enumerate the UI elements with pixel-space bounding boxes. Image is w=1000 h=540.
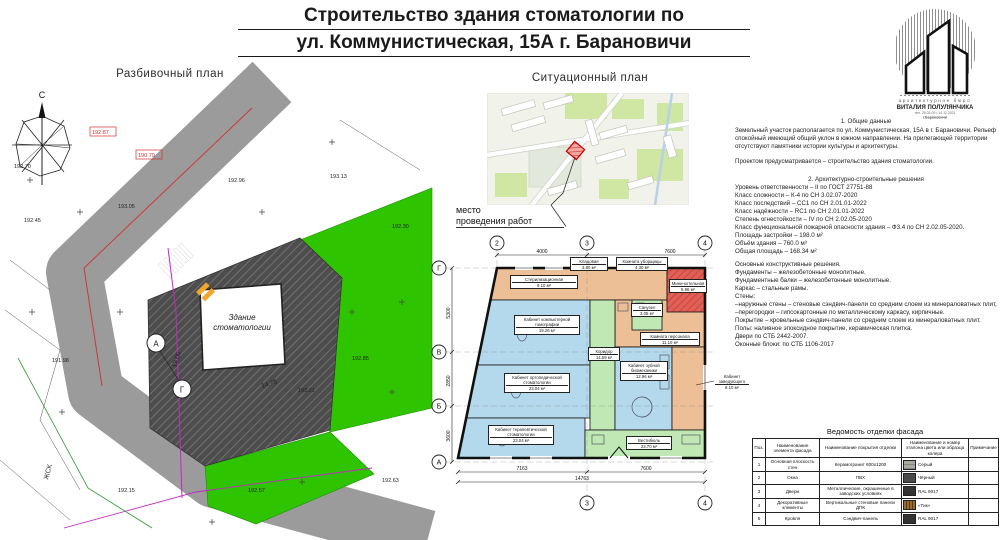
cell-coating: Металлические, окрашенные в заводских ус… — [820, 485, 902, 499]
room-area: 23.04 м² — [506, 386, 568, 391]
room-head-office — [672, 347, 705, 430]
col-header: Наименование элемента фасада — [766, 439, 820, 458]
elevation-label: 192.63 — [382, 478, 399, 484]
notes-paragraph: Земельный участок располагается по ул. К… — [735, 127, 997, 151]
elevation-label: 193.13 — [330, 174, 347, 180]
cell-element: Декоративные элементы — [766, 498, 820, 512]
color-swatch — [903, 514, 916, 524]
cell-pos: 5 — [753, 512, 766, 525]
room-biomechanics — [615, 347, 672, 430]
notes-line: Класс последствий – СС1 по СН 2.01.01-20… — [735, 200, 997, 208]
elevation-label: 192.96 — [228, 178, 245, 184]
elevation-label: 191.98 — [52, 358, 69, 364]
page-title-line1: Строительство здания стоматологии по — [238, 3, 750, 30]
cell-coating: Сэндвич-панель — [820, 512, 902, 525]
elevation-label: 192.15 — [118, 488, 135, 494]
elevation-label: 193.21 — [298, 388, 315, 394]
notes-line: –перегородки – гипсокартонные по металли… — [735, 309, 997, 317]
axis-bubble-label: 2 — [495, 241, 499, 248]
axis-bubble-label: 4 — [703, 241, 707, 248]
notes-block: 1. Общие данные Земельный участок распол… — [735, 114, 997, 349]
page-title-line2: ул. Коммунистическая, 15А г. Барановичи — [238, 30, 750, 57]
room-area: 8.10 м² — [715, 385, 749, 390]
cell-pos: 4 — [753, 498, 766, 512]
elevation-label: 193.05 — [118, 204, 135, 210]
color-swatch — [903, 486, 916, 496]
dim-label: 5300 — [446, 307, 452, 318]
cell-note — [969, 485, 999, 499]
room-area: 9.10 м² — [512, 283, 576, 288]
facade-table: Поз. Наименование элемента фасада Наимен… — [752, 438, 999, 526]
col-header: Наименование покрытия отделки — [820, 439, 902, 458]
notes-section1-title: 1. Общие данные — [735, 118, 997, 126]
elevation-label: 192.87 — [92, 130, 109, 136]
notes-line: Фундаменты – железобетонные монолитные. — [735, 269, 997, 277]
site-building-label-2: стоматологии — [213, 323, 271, 332]
col-header: Поз. — [753, 439, 766, 458]
table-header-row: Поз. Наименование элемента фасада Наимен… — [753, 439, 999, 458]
room-label: Коридор 14.59 м² — [588, 347, 620, 361]
notes-line: Класс функциональной пожарной опасности … — [735, 224, 997, 232]
cell-coating: ПВХ — [820, 472, 902, 485]
dim-label: 2850 — [446, 375, 452, 386]
layout-plan-panel: Разбивочный план Здание стоматологии — [0, 60, 440, 540]
dim-label-total: 14763 — [575, 476, 589, 482]
table-row: 5 Кровля Сэндвич-панель RAL 9017 — [753, 512, 999, 525]
axis-bubble-label: Б — [437, 404, 442, 411]
color-name: RAL 9017 — [918, 489, 938, 494]
axis-bubble-label: 3 — [585, 501, 589, 508]
cell-color: Чёрный — [902, 472, 969, 485]
elevation-label: 192.45 — [24, 218, 41, 224]
cell-color: RAL 9017 — [902, 485, 969, 499]
room-area: 3.80 м² — [572, 265, 606, 270]
north-arrow-icon — [12, 102, 72, 185]
cell-element: Основная плоскость стен — [766, 458, 820, 472]
dim-label: 3600 — [446, 430, 452, 441]
room-label: Кабинет ортопедической стоматологии 23.0… — [504, 373, 570, 393]
table-row: 3 Двери Металлические, окрашенные в заво… — [753, 485, 999, 499]
floor-plan-panel: 4000 7600 2 3 4 7163 7600 14763 3 — [430, 235, 750, 540]
cell-pos: 2 — [753, 472, 766, 485]
site-building-label-1: Здание — [228, 313, 256, 322]
elevation-label: 190.79 — [138, 153, 155, 159]
room-label: Кабинет зубной биомеханики 12.96 м² — [620, 361, 668, 381]
room-area: 4.30 м² — [618, 265, 666, 270]
room-label: Стерилизационная 9.10 м² — [510, 275, 578, 289]
table-row: 4 Декоративные элементы Вертикальные сте… — [753, 498, 999, 512]
dim-label: 7163 — [516, 466, 527, 472]
room-corridor — [590, 300, 615, 430]
axis-bubble-label: В — [437, 350, 442, 357]
notes-line: Объём здания – 760.0 м³ — [735, 240, 997, 248]
room-area: 12.96 м² — [622, 374, 666, 379]
cell-note — [969, 512, 999, 525]
cell-color: Серый — [902, 458, 969, 472]
notes-line: Покрытие – кровельные сэндвич-панели со … — [735, 317, 997, 325]
color-swatch — [903, 500, 916, 510]
layout-plan-drawing: Здание стоматологии — [0, 60, 440, 540]
notes-line: Каркас – стальные рамы. — [735, 285, 997, 293]
cell-element: Двери — [766, 485, 820, 499]
bottom-dimensions: 7163 7600 14763 3 4 — [456, 466, 712, 510]
room-label: Комната персонала 11.10 м² — [640, 332, 700, 346]
elevation-label: 192.85 — [352, 356, 369, 362]
cell-color: «Тик» — [902, 498, 969, 512]
room-name: Кабинет ортопедической стоматологии — [506, 375, 568, 386]
dim-label: 7600 — [640, 466, 651, 472]
color-name: «Тик» — [918, 503, 930, 508]
elevation-label: 192.30 — [392, 224, 409, 230]
facade-table-title: Ведомость отделки фасада — [752, 427, 998, 436]
axis-bubble-label: Г — [437, 266, 441, 273]
cell-color: RAL 9017 — [902, 512, 969, 525]
logo-type-label: архитектурное бюро — [899, 98, 971, 103]
page-title: Строительство здания стоматологии по ул.… — [238, 3, 750, 57]
axis-bubble-label: А — [153, 340, 159, 349]
col-header: Примечание — [969, 439, 999, 458]
top-dimensions: 4000 7600 2 3 4 — [490, 236, 712, 257]
room-area: 23.70 м² — [628, 444, 670, 449]
facade-finish-table: Ведомость отделки фасада Поз. Наименован… — [752, 427, 998, 526]
cell-element: Кровля — [766, 512, 820, 525]
room-area: 14.59 м² — [590, 355, 618, 360]
room-name: Кабинет компьютерной томографии — [516, 317, 578, 328]
north-label: С — [39, 90, 46, 100]
notes-line: Полы: наливное эпоксидное покрытие, кера… — [735, 325, 997, 333]
room-area: 11.10 м² — [642, 340, 698, 345]
cell-element: Окна — [766, 472, 820, 485]
room-label: Санузел 3.05 м² — [631, 303, 663, 317]
notes-line: Фундаментные балки – железобетонные моно… — [735, 277, 997, 285]
cell-coating: Керамогранит 600х1200 — [820, 458, 902, 472]
room-label: Вестибюль 23.70 м² — [626, 436, 672, 450]
notes-line: Уровень ответственности – II по ГОСТ 277… — [735, 184, 997, 192]
cell-coating: Вертикальные стеновые панели ДПК — [820, 498, 902, 512]
axis-bubble-label: А — [437, 460, 442, 467]
notes-line: Класс надёжности – RC1 по СН 2.01.01-202… — [735, 208, 997, 216]
marker-label: место проведения работ — [456, 205, 564, 228]
room-label: Комната уборщицы 4.30 м² — [616, 257, 668, 271]
cell-note — [969, 498, 999, 512]
room-area: 23.04 м² — [490, 438, 552, 443]
marker-label-line1: место — [456, 205, 481, 215]
bureau-logo: архитектурное бюро ВИТАЛИЯ ПОЛУЛЯНЧИКА т… — [872, 2, 998, 120]
axis-bubble-label: Г — [180, 386, 185, 395]
cell-note — [969, 458, 999, 472]
marker-label-line2: проведения работ — [456, 216, 564, 228]
zhsk-label: ЖСК — [43, 463, 54, 481]
color-name: Чёрный — [918, 475, 935, 480]
room-label: Кабинет компьютерной томографии 19.26 м² — [514, 315, 580, 335]
room-label: Мини-котельная 5.96 м² — [669, 279, 707, 293]
notes-line: Основные конструктивные решения. — [735, 261, 997, 269]
table-row: 1 Основная плоскость стен Керамогранит 6… — [753, 458, 999, 472]
situational-plan-panel: Ситуационный план — [440, 60, 740, 240]
axis-bubble-label: 3 — [585, 241, 589, 248]
notes-line: Степень огнестойкости – IV по СН 2.02.05… — [735, 216, 997, 224]
room-name: Кабинет заведующего — [715, 374, 749, 385]
notes-section2-title: 2. Архитектурно-строительные решения — [735, 176, 997, 184]
col-header: Наименование и номер эталона цвета или о… — [902, 439, 969, 458]
room-label: Кабинет заведующего 8.10 м² — [714, 373, 750, 391]
notes-line: Оконные блоки: по СТБ 1106-2017 — [735, 341, 997, 349]
room-name: Кабинет зубной биомеханики — [622, 363, 666, 374]
color-swatch — [903, 460, 916, 470]
cell-pos: 3 — [753, 485, 766, 499]
dim-label: 7600 — [664, 249, 675, 255]
notes-line: –наружные стены – стеновые сэндвич-панел… — [735, 301, 997, 309]
situational-plan-title: Ситуационный план — [480, 72, 700, 84]
left-dimensions: Г В Б А 5300 2850 3600 — [432, 261, 454, 469]
bureau-logo-icon: архитектурное бюро ВИТАЛИЯ ПОЛУЛЯНЧИКА т… — [872, 2, 998, 120]
notes-line: Класс сложности – К-4 по СН 3.02.07-2020 — [735, 192, 997, 200]
notes-line: Площадь застройки – 198.0 м² — [735, 232, 997, 240]
drawing-sheet: Строительство здания стоматологии по ул.… — [0, 0, 1000, 540]
notes-line: Стены: — [735, 293, 997, 301]
room-area: 5.96 м² — [671, 287, 705, 292]
room-label: Кабинет терапевтической стоматологии 23.… — [488, 425, 554, 445]
room-label: Кладовая 3.80 м² — [570, 257, 608, 271]
elevation-label: 192.57 — [248, 488, 265, 494]
room-area: 3.05 м² — [633, 311, 661, 316]
notes-line: Двери по СТБ 2442-2007. — [735, 333, 997, 341]
notes-line: Общая площадь – 168.34 м² — [735, 248, 997, 256]
dim-label: 4000 — [536, 249, 547, 255]
color-swatch — [903, 473, 916, 483]
color-name: RAL 9017 — [918, 516, 938, 521]
room-name: Кабинет терапевтической стоматологии — [490, 427, 552, 438]
table-row: 2 Окна ПВХ Чёрный — [753, 472, 999, 485]
room-area: 19.26 м² — [516, 328, 578, 333]
color-name: Серый — [918, 462, 932, 467]
crosswalk — [158, 243, 194, 278]
axis-bubble-label: 4 — [703, 501, 707, 508]
situational-map — [487, 93, 689, 205]
cell-note — [969, 472, 999, 485]
notes-paragraph: Проектом предусматривается – строительст… — [735, 158, 997, 166]
cell-pos: 1 — [753, 458, 766, 472]
